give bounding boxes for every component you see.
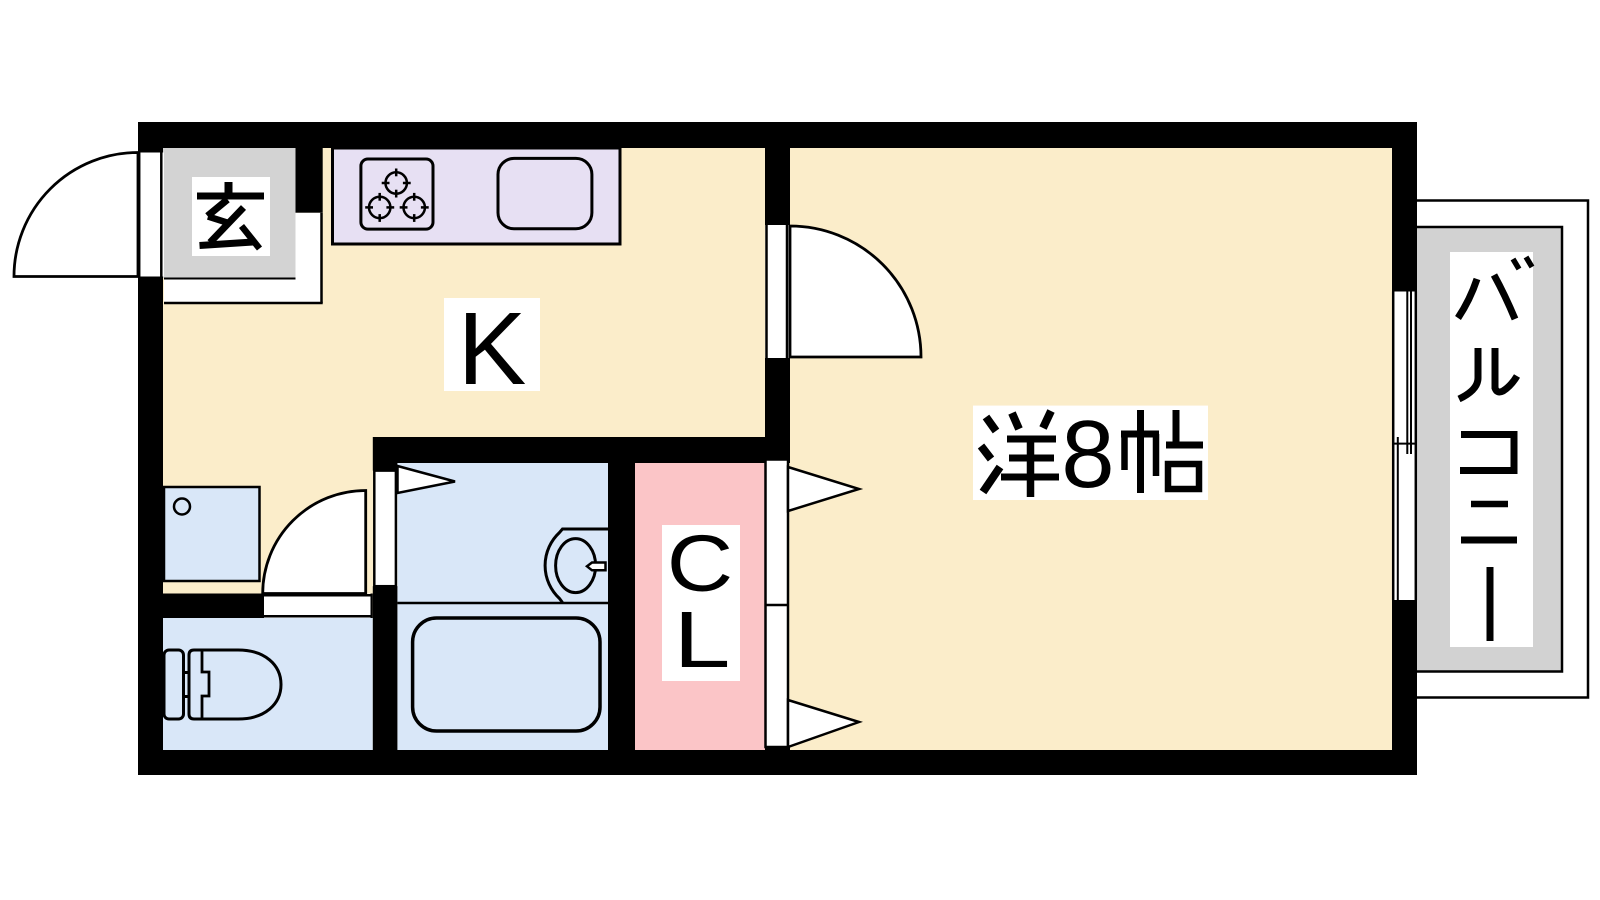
svg-text:K: K [458,291,527,406]
svg-text:L: L [674,596,731,685]
svg-text:8: 8 [1061,401,1114,508]
